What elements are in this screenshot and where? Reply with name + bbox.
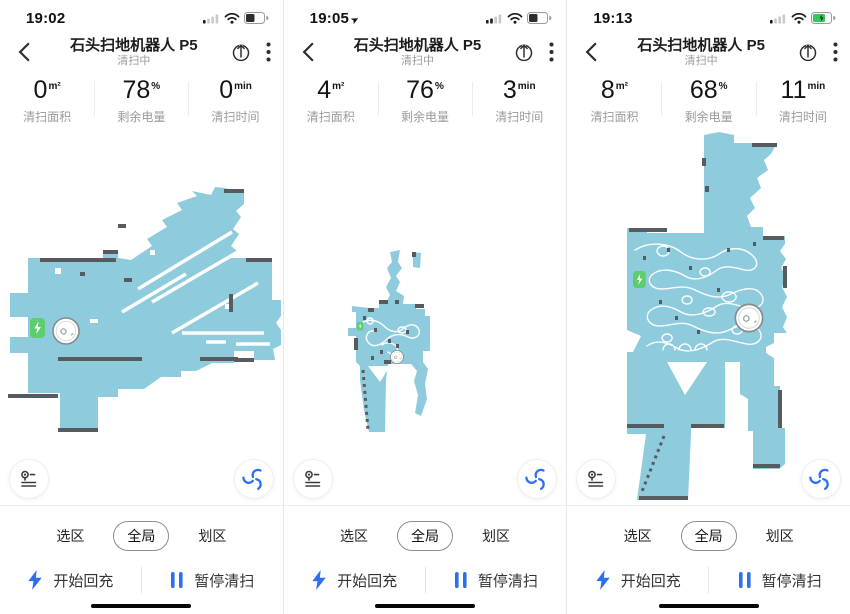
map-zone-list-button[interactable] <box>293 459 333 499</box>
robot-icon[interactable] <box>53 318 79 344</box>
map-floor[interactable] <box>10 187 281 428</box>
more-menu-icon[interactable] <box>266 42 271 62</box>
page-title: 石头扫地机器人 P5 <box>322 37 514 54</box>
robot-icon[interactable] <box>736 304 763 331</box>
cleaning-stats: 4m²清扫面积 76%剩余电量 3min清扫时间 <box>284 74 567 126</box>
home-indicator[interactable] <box>659 604 759 609</box>
cellular-signal-icon <box>486 13 503 24</box>
battery-icon <box>244 12 269 24</box>
share-icon[interactable] <box>797 41 819 63</box>
recharge-button[interactable]: 开始回充 <box>284 570 425 591</box>
tab-draw-zone[interactable]: 划区 <box>196 522 228 550</box>
action-bar: 开始回充 暂停清扫 <box>284 560 567 600</box>
cleaning-stats: 8m²清扫面积 68%剩余电量 11min清扫时间 <box>567 74 850 126</box>
phone-panel-1: 19:02 石头扫地机器人 P5 清扫中 0m²清扫面积 78%剩余电量 0mi… <box>0 0 283 614</box>
tab-global[interactable]: 全局 <box>113 521 169 551</box>
back-chevron-icon[interactable] <box>296 39 322 65</box>
stat-time: 3min清扫时间 <box>472 74 566 126</box>
fan-icon <box>525 467 549 491</box>
status-subtitle: 清扫中 <box>605 55 797 68</box>
more-menu-icon[interactable] <box>549 42 554 62</box>
pause-icon <box>170 571 184 589</box>
pause-button[interactable]: 暂停清扫 <box>426 570 567 591</box>
pause-icon <box>454 571 468 589</box>
mode-tabs: 选区 全局 划区 <box>284 519 567 553</box>
status-bar: 19:05➤ <box>284 0 567 30</box>
clock-time: 19:02 <box>26 10 67 27</box>
home-indicator[interactable] <box>375 604 475 609</box>
divider <box>0 505 283 506</box>
share-icon[interactable] <box>513 41 535 63</box>
clock-time: 19:13 <box>593 10 634 27</box>
page-title: 石头扫地机器人 P5 <box>605 37 797 54</box>
triple-screenshot-strip: 19:02 石头扫地机器人 P5 清扫中 0m²清扫面积 78%剩余电量 0mi… <box>0 0 850 614</box>
tab-global[interactable]: 全局 <box>397 521 453 551</box>
home-indicator[interactable] <box>91 604 191 609</box>
pause-button[interactable]: 暂停清扫 <box>142 570 283 591</box>
status-subtitle: 清扫中 <box>38 55 230 68</box>
battery-icon <box>527 12 552 24</box>
back-chevron-icon[interactable] <box>579 39 605 65</box>
nav-header: 石头扫地机器人 P5 清扫中 <box>0 30 283 74</box>
pause-button[interactable]: 暂停清扫 <box>709 570 850 591</box>
cleaning-map[interactable] <box>284 125 567 505</box>
wifi-icon <box>224 13 240 24</box>
tab-draw-zone[interactable]: 划区 <box>480 522 512 550</box>
stat-battery: 78%剩余电量 <box>94 74 188 126</box>
lightning-icon <box>311 570 327 590</box>
lightning-icon <box>595 570 611 590</box>
fan-icon <box>242 467 266 491</box>
status-subtitle: 清扫中 <box>322 55 514 68</box>
tab-select-zone[interactable]: 选区 <box>54 522 86 550</box>
wifi-icon <box>507 13 523 24</box>
mode-tabs: 选区 全局 划区 <box>567 519 850 553</box>
pin-list-icon <box>585 468 607 490</box>
back-chevron-icon[interactable] <box>12 39 38 65</box>
nav-header: 石头扫地机器人 P5 清扫中 <box>284 30 567 74</box>
recharge-button[interactable]: 开始回充 <box>567 570 708 591</box>
dock-icon[interactable] <box>30 318 45 338</box>
robot-icon[interactable] <box>390 351 403 364</box>
fan-power-button[interactable] <box>801 459 841 499</box>
page-title: 石头扫地机器人 P5 <box>38 37 230 54</box>
dock-icon[interactable] <box>633 271 646 288</box>
cellular-signal-icon <box>770 13 787 24</box>
pin-list-icon <box>18 468 40 490</box>
tab-global[interactable]: 全局 <box>681 521 737 551</box>
divider <box>567 505 850 506</box>
cleaning-map[interactable] <box>567 125 850 505</box>
stat-area: 4m²清扫面积 <box>284 74 378 126</box>
stat-time: 11min清扫时间 <box>756 74 850 126</box>
mode-tabs: 选区 全局 划区 <box>0 519 283 553</box>
share-icon[interactable] <box>230 41 252 63</box>
stat-time: 0min清扫时间 <box>188 74 282 126</box>
cellular-signal-icon <box>203 13 220 24</box>
fan-power-button[interactable] <box>234 459 274 499</box>
stat-battery: 76%剩余电量 <box>378 74 472 126</box>
clock-time: 19:05➤ <box>310 10 360 27</box>
battery-charging-icon <box>811 12 836 24</box>
nav-header: 石头扫地机器人 P5 清扫中 <box>567 30 850 74</box>
tab-select-zone[interactable]: 选区 <box>338 522 370 550</box>
more-menu-icon[interactable] <box>833 42 838 62</box>
divider <box>284 505 567 506</box>
fan-icon <box>809 467 833 491</box>
location-arrow-icon: ➤ <box>349 13 362 27</box>
action-bar: 开始回充 暂停清扫 <box>0 560 283 600</box>
pause-icon <box>738 571 752 589</box>
tab-draw-zone[interactable]: 划区 <box>764 522 796 550</box>
stat-area: 8m²清扫面积 <box>567 74 661 126</box>
status-bar: 19:02 <box>0 0 283 30</box>
cleaning-map[interactable] <box>0 125 283 505</box>
wifi-icon <box>791 13 807 24</box>
phone-panel-3: 19:13 石头扫地机器人 P5 清扫中 8m²清扫面积 68%剩余电量 11m… <box>566 0 850 614</box>
pin-list-icon <box>302 468 324 490</box>
recharge-button[interactable]: 开始回充 <box>0 570 141 591</box>
status-bar: 19:13 <box>567 0 850 30</box>
tab-select-zone[interactable]: 选区 <box>622 522 654 550</box>
cleaning-stats: 0m²清扫面积 78%剩余电量 0min清扫时间 <box>0 74 283 126</box>
phone-panel-2: 19:05➤ 石头扫地机器人 P5 清扫中 4m²清扫面积 76%剩余电量 3m… <box>283 0 567 614</box>
dock-icon[interactable] <box>357 322 363 330</box>
stat-battery: 68%剩余电量 <box>662 74 756 126</box>
stat-area: 0m²清扫面积 <box>0 74 94 126</box>
lightning-icon <box>27 570 43 590</box>
map-zone-list-button[interactable] <box>9 459 49 499</box>
action-bar: 开始回充 暂停清扫 <box>567 560 850 600</box>
